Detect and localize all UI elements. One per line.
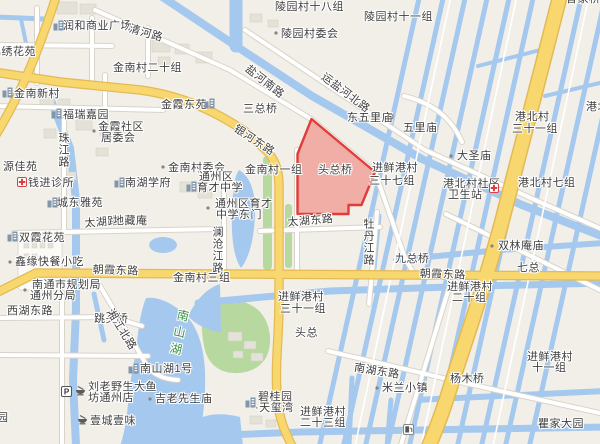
label-jinnan-20: 金南村二十组 bbox=[113, 62, 182, 74]
label-jinxian-23-2: 二十三组 bbox=[300, 417, 346, 429]
label-gangbei-31: 三十一组 bbox=[512, 123, 558, 135]
poi-dot-icon bbox=[23, 288, 35, 300]
label-yangmu-bridge: 杨木桥 bbox=[450, 373, 485, 385]
food-icon bbox=[77, 415, 89, 427]
label-jinxian-20-2: 二十组 bbox=[452, 292, 487, 304]
label-jinnan-3: 金南村三组 bbox=[173, 272, 231, 284]
label-jinnan-xincun: 金南新村 bbox=[14, 88, 60, 100]
label-zhujiang-road: 珠江路 bbox=[57, 132, 68, 168]
label-touzong-bridge: 头总桥 bbox=[318, 164, 353, 176]
poi-dot-icon bbox=[274, 31, 286, 43]
label-jiuzong-bridge: 九总桥 bbox=[395, 253, 430, 265]
label-zhaoxia-road-east: 朝霞东路 bbox=[420, 268, 466, 282]
residential-icon bbox=[53, 20, 65, 32]
map-label-layer: 润和商业广场清河路陵园村十八组陵园村十一组锦绣花苑金南村二十组陵园村委会金南新村… bbox=[0, 0, 600, 444]
label-qinghe-road: 清河路 bbox=[128, 23, 164, 44]
residential-icon bbox=[245, 397, 257, 409]
label-mudanjiang-road: 牡丹江路 bbox=[362, 218, 373, 266]
residential-icon bbox=[2, 87, 14, 99]
poi-dot-icon bbox=[490, 244, 502, 256]
poi-dot-icon bbox=[148, 397, 160, 409]
fuel-icon bbox=[403, 424, 415, 436]
label-jinxian-31-1: 进鲜港村 bbox=[278, 291, 324, 303]
label-nanhu-xuefu: 南湖学府 bbox=[125, 177, 171, 189]
label-jinxian-31-2: 三十一组 bbox=[280, 303, 326, 315]
poi-dot-icon bbox=[449, 154, 461, 166]
label-chengdong-yayuan: 城东雅苑 bbox=[57, 197, 103, 209]
label-shuangxia-huayuan: 双霞花苑 bbox=[19, 232, 65, 244]
label-liulao-fish-2: 坊通州店 bbox=[88, 392, 134, 404]
label-yunyanhebei-road: 运盐河北路 bbox=[319, 71, 372, 115]
residential-icon bbox=[204, 98, 216, 110]
label-dasheng-temple: 大圣庙 bbox=[457, 150, 492, 162]
clinic-cross-icon bbox=[489, 183, 501, 195]
label-furui-jiayuan: 福瑞嘉园 bbox=[63, 109, 109, 121]
label-wuli-temple: 五里庙 bbox=[403, 122, 438, 134]
svg-text:P: P bbox=[64, 387, 70, 396]
food-icon bbox=[75, 386, 87, 398]
label-gangbei-village: 港北村 bbox=[515, 111, 550, 123]
label-lingyuan-18: 陵园村十八组 bbox=[275, 1, 344, 13]
poi-dot-icon bbox=[92, 129, 104, 141]
label-qianjin-clinic: 钱进诊所 bbox=[28, 177, 74, 189]
label-yuan-partial: 园 bbox=[0, 412, 9, 424]
label-runhe-plaza: 润和商业广场 bbox=[63, 20, 132, 32]
temple-ring-icon bbox=[387, 113, 399, 125]
label-qizong: 七总 bbox=[517, 262, 540, 274]
label-nanshan-lake: 南山湖 bbox=[167, 308, 188, 360]
poi-dot-icon bbox=[161, 165, 173, 177]
label-nanshanhu-no1: 南山湖1号 bbox=[140, 363, 193, 375]
label-nanhu-east-road: 南湖东路 bbox=[353, 362, 400, 381]
poi-dot-icon bbox=[8, 260, 20, 272]
label-sanzong-bridge: 三总桥 bbox=[243, 103, 278, 115]
label-planning-bureau-2: 通州分局 bbox=[30, 290, 76, 302]
residential-icon bbox=[47, 197, 59, 209]
residential-icon bbox=[7, 231, 19, 243]
label-jinxian-37-2: 三十七组 bbox=[369, 175, 415, 187]
label-jinxian-37-1: 进鲜港村 bbox=[372, 162, 418, 174]
residential-icon bbox=[128, 363, 140, 375]
label-gangbei-edge: 港北村 bbox=[586, 101, 600, 113]
label-touzong: 头总 bbox=[295, 327, 318, 339]
label-jinxia-community-2: 居委会 bbox=[101, 132, 136, 144]
label-taihu-east-road: 太湖东路 bbox=[287, 213, 334, 229]
label-zhaoxia-road-west: 朝霞东路 bbox=[93, 264, 139, 278]
label-lancangjiang-road: 澜沧江路 bbox=[211, 226, 222, 274]
label-xihu-road: 西湖东路 bbox=[7, 305, 53, 317]
label-qujia-dayuan: 瞿家大园 bbox=[538, 418, 584, 430]
residential-icon bbox=[51, 108, 63, 120]
label-yicheng-yiwei: 壹城壹味 bbox=[90, 415, 136, 427]
poi-dot-icon bbox=[206, 206, 218, 218]
label-yucai-school-2: 育才中学 bbox=[197, 182, 243, 194]
residential-icon bbox=[186, 181, 198, 193]
label-jinxia-dongyuan: 金霞东苑 bbox=[161, 99, 207, 111]
label-yinhe-road: 银河东路 bbox=[231, 123, 276, 158]
residential-icon bbox=[114, 177, 126, 189]
clinic-cross-icon bbox=[17, 177, 29, 189]
label-caojiaqiao-partial: 曹家桥 bbox=[566, 0, 600, 5]
poi-dot-icon bbox=[375, 386, 387, 398]
label-jilao-temple: 吉老先生庙 bbox=[155, 393, 213, 405]
label-biguiyuan-2: ·天玺湾 bbox=[255, 402, 294, 414]
label-gangbei-7: 港北村七组 bbox=[518, 177, 576, 189]
label-xinyuan-snack: 鑫缘快餐小吃 bbox=[15, 256, 84, 268]
map-canvas[interactable]: 润和商业广场清河路陵园村十八组陵园村十一组锦绣花苑金南村二十组陵园村委会金南新村… bbox=[0, 0, 600, 444]
label-lingyuan-11: 陵园村十一组 bbox=[364, 11, 433, 23]
label-jinxian-11-2: 十一组 bbox=[532, 362, 567, 374]
label-shuanglin-temple: 双林庵庙 bbox=[498, 240, 544, 252]
label-yucai-eastgate-2: 中学东门 bbox=[216, 209, 262, 221]
label-yanhenan-road: 盐河南路 bbox=[243, 63, 287, 101]
label-jinnan-1: 金南村一组 bbox=[245, 164, 303, 176]
label-lingyuan-committee: 陵园村委会 bbox=[281, 28, 339, 40]
parking-icon: P bbox=[61, 386, 73, 398]
label-dizang-temple: 地藏庵 bbox=[113, 215, 148, 227]
label-yuanjia-yuan: 源佳苑 bbox=[3, 161, 38, 173]
label-milan-town: 米兰小镇 bbox=[382, 382, 428, 394]
label-jinxiu-huayuan: 锦绣花苑 bbox=[0, 46, 36, 58]
label-gangbei-clinic-2: 卫生站 bbox=[448, 189, 483, 201]
